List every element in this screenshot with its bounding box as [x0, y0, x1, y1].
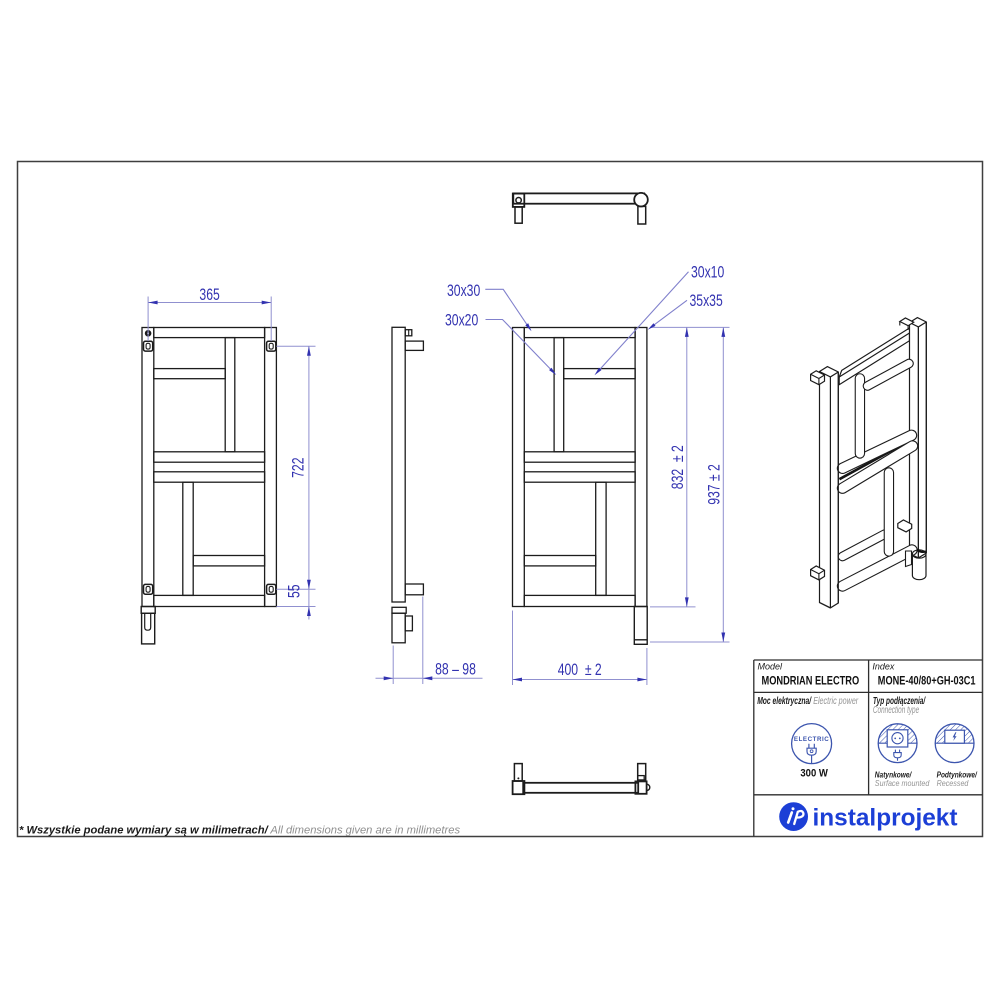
svg-text:Electric power: Electric power [813, 696, 859, 707]
svg-text:Index: Index [872, 661, 895, 671]
svg-text:MONDRIAN ELECTRO: MONDRIAN ELECTRO [762, 675, 860, 688]
svg-text:30x10: 30x10 [691, 264, 724, 282]
svg-text:Moc elektryczna/: Moc elektryczna/ [757, 696, 812, 707]
svg-text:* Wszystkie podane wymiary są: * Wszystkie podane wymiary są w milimetr… [19, 825, 460, 837]
svg-text:Connection type: Connection type [873, 705, 920, 716]
svg-text:instalprojekt: instalprojekt [813, 805, 958, 832]
svg-text:30x20: 30x20 [445, 312, 478, 330]
svg-text:88 – 98: 88 – 98 [435, 661, 476, 679]
svg-text:400 ± 2: 400 ± 2 [558, 661, 602, 679]
svg-text:55: 55 [286, 584, 304, 598]
svg-text:Model: Model [758, 661, 784, 671]
svg-text:MONE-40/80+GH-03C1: MONE-40/80+GH-03C1 [878, 675, 976, 688]
svg-text:300 W: 300 W [800, 768, 828, 780]
svg-text:722: 722 [290, 458, 308, 478]
svg-text:Surface mounted: Surface mounted [875, 778, 930, 788]
svg-text:365: 365 [199, 286, 219, 304]
svg-text:30x30: 30x30 [447, 282, 480, 300]
svg-text:35x35: 35x35 [690, 293, 723, 311]
svg-text:Recessed: Recessed [937, 778, 969, 788]
svg-text:937 ± 2: 937 ± 2 [706, 464, 724, 505]
svg-text:ELECTRIC: ELECTRIC [794, 736, 829, 743]
svg-text:832 ± 2: 832 ± 2 [669, 445, 687, 489]
